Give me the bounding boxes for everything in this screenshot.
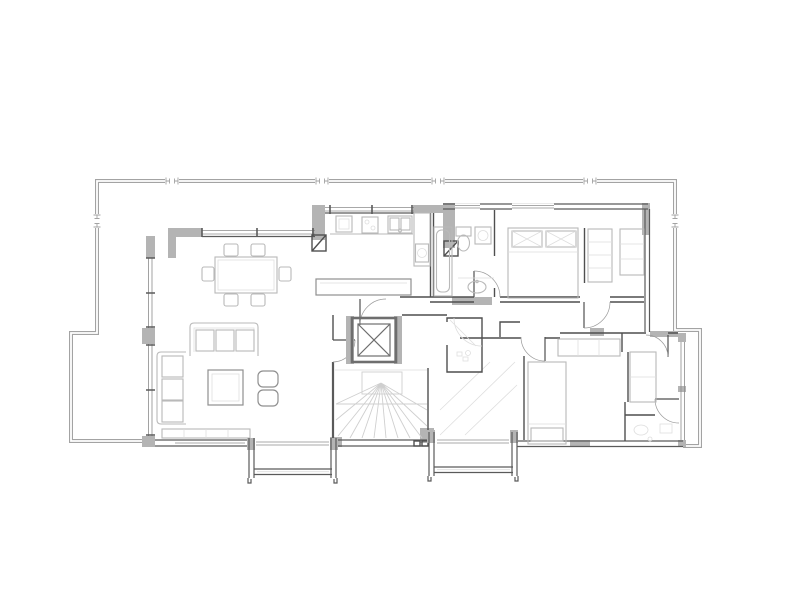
coffee-table [208, 370, 243, 405]
kitchen-peninsula [316, 279, 411, 295]
wall-segment [452, 297, 492, 305]
expansion-joint [165, 177, 179, 186]
wall-segment [142, 436, 155, 447]
wall-segment [146, 236, 155, 258]
wall-segment [168, 228, 176, 258]
expansion-joint [93, 214, 102, 228]
expansion-joint [671, 214, 680, 228]
wall-segment [678, 333, 686, 342]
floor-plan-drawing [0, 0, 800, 600]
wall-segment [650, 331, 678, 337]
expansion-joint [315, 177, 329, 186]
wall-segment [413, 205, 443, 213]
expansion-joint [431, 177, 445, 186]
canvas-background [0, 0, 800, 600]
wall-segment [142, 328, 155, 344]
expansion-joint [583, 177, 597, 186]
pouf [258, 390, 278, 406]
wall-segment [590, 328, 604, 336]
wall-segment [642, 203, 650, 235]
pouf [258, 371, 278, 387]
